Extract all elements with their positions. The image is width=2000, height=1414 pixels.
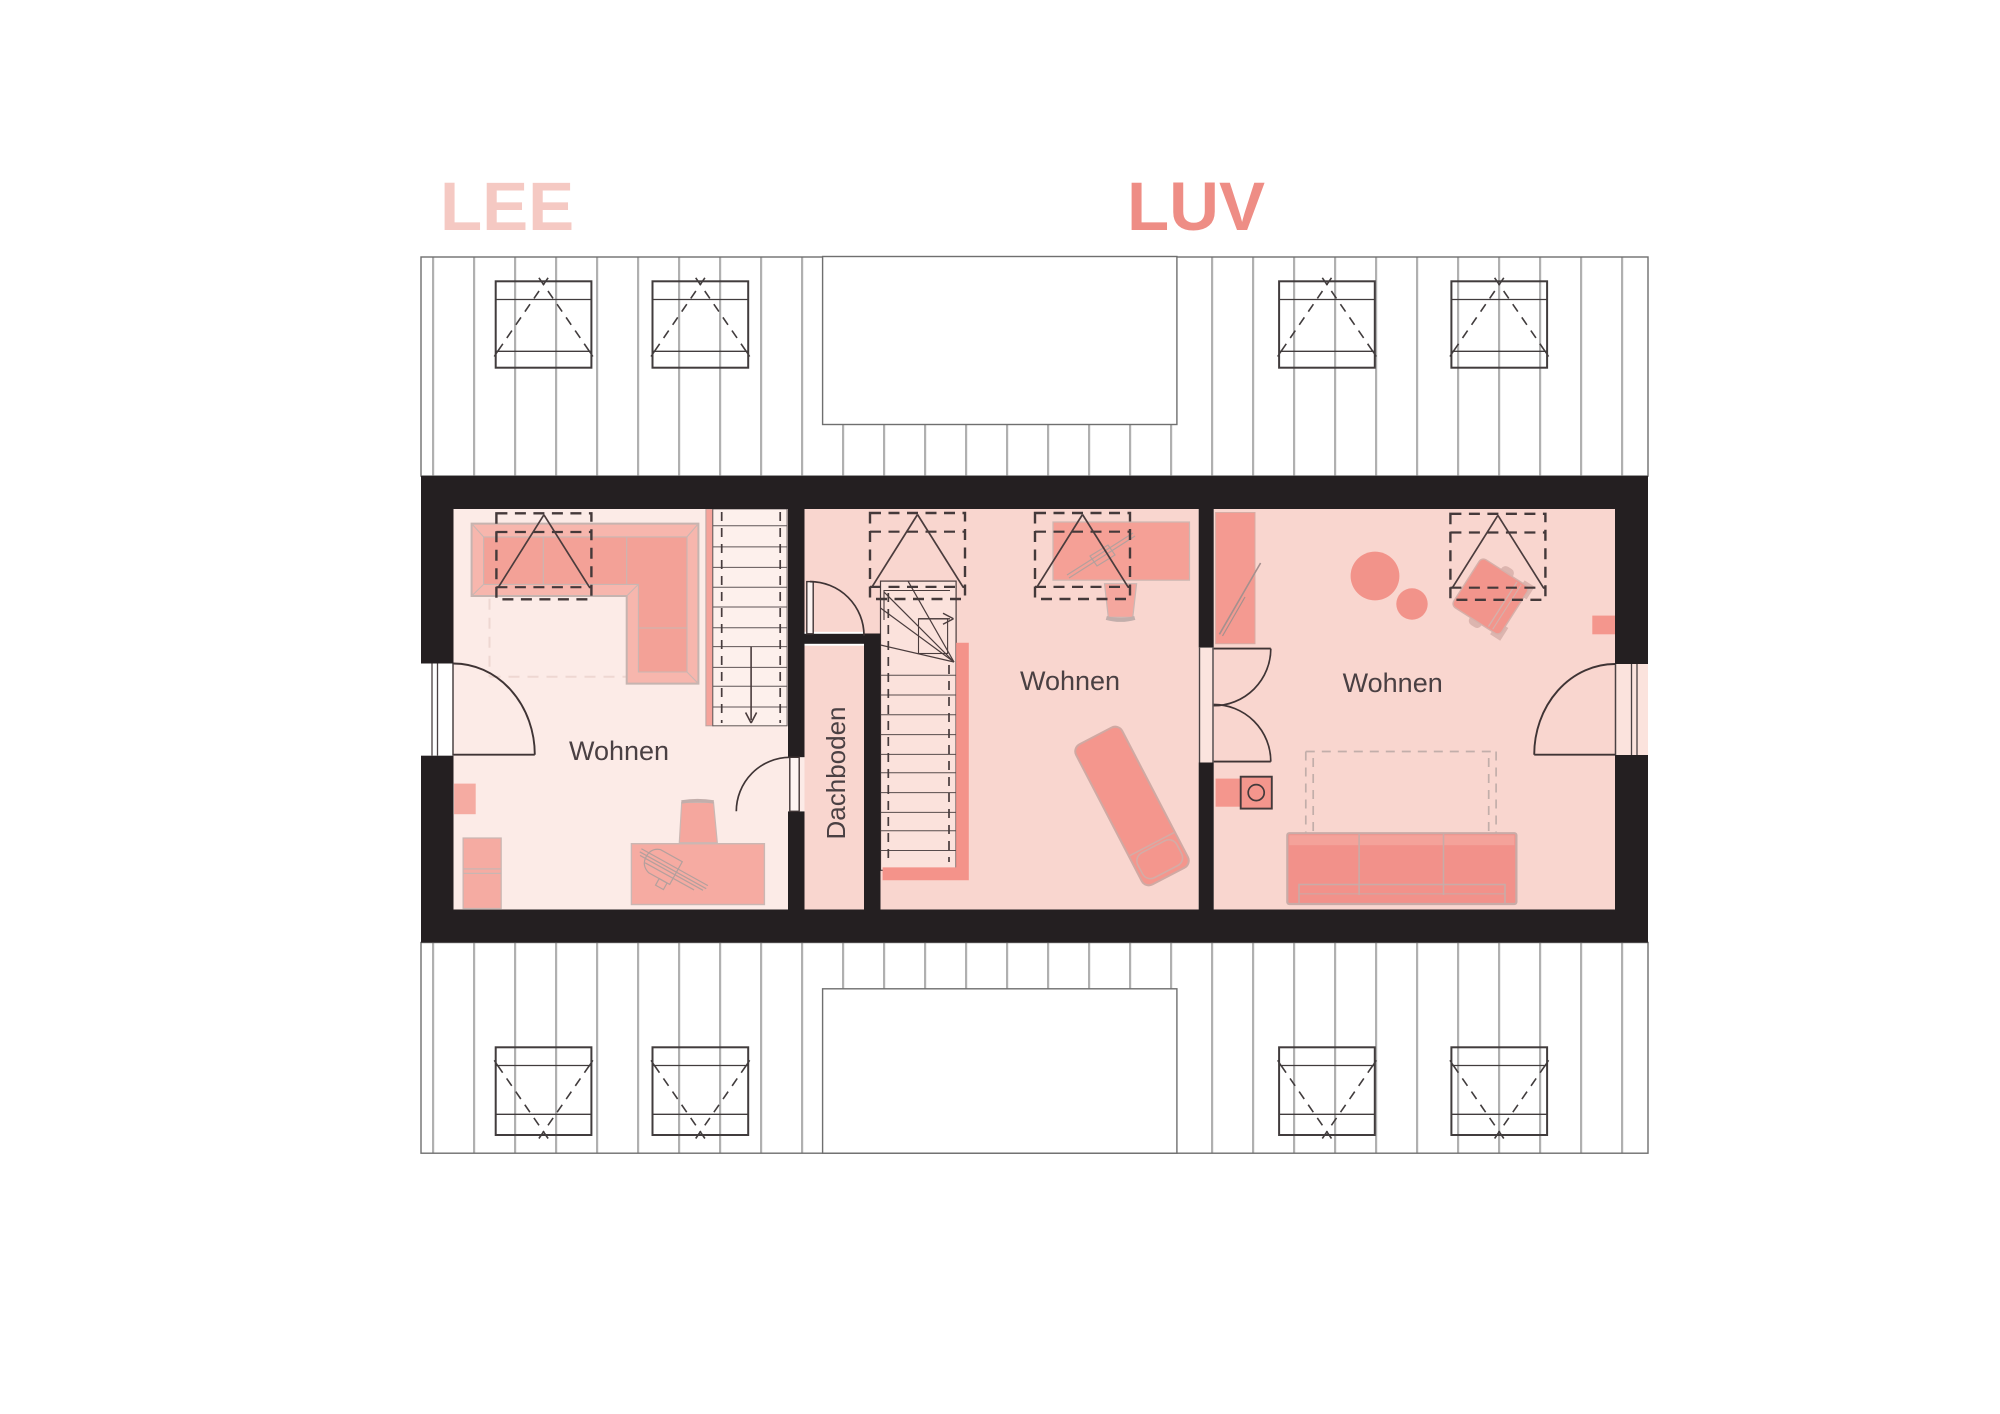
svg-text:LUV: LUV (1127, 168, 1265, 245)
svg-text:Wohnen: Wohnen (1020, 666, 1120, 696)
svg-text:Dachboden: Dachboden (821, 707, 851, 840)
svg-text:Wohnen: Wohnen (1343, 668, 1443, 698)
svg-text:Wohnen: Wohnen (569, 736, 669, 766)
svg-text:LEE: LEE (440, 168, 574, 245)
